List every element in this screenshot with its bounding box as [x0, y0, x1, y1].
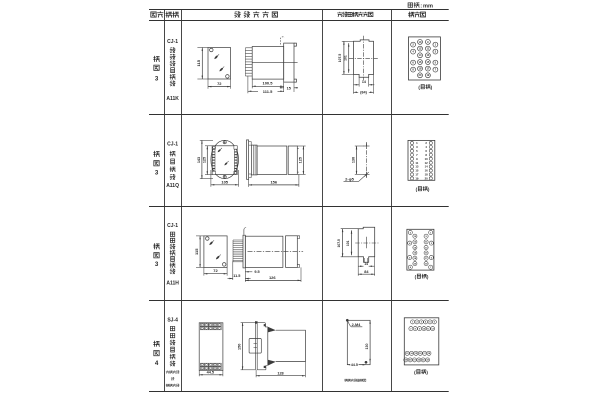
svg-text:CJ-1: CJ-1: [167, 39, 178, 45]
svg-text:14: 14: [364, 262, 368, 266]
svg-text:CJ-1: CJ-1: [167, 223, 178, 229]
svg-text:125: 125: [299, 157, 303, 163]
svg-text:72: 72: [217, 81, 222, 86]
svg-text:130: 130: [365, 344, 369, 350]
svg-text:15: 15: [287, 86, 291, 90]
svg-text:150: 150: [238, 344, 242, 350]
svg-text:mm: mm: [423, 3, 433, 9]
svg-text:107.5: 107.5: [338, 54, 342, 63]
svg-text:SJ-4: SJ-4: [167, 318, 178, 324]
svg-text:CJ-1: CJ-1: [167, 142, 178, 148]
svg-text:20: 20: [425, 176, 429, 180]
svg-text:A11K: A11K: [166, 96, 179, 102]
svg-text:4: 4: [155, 360, 159, 367]
svg-text:11.5: 11.5: [233, 274, 240, 278]
svg-text:156: 156: [270, 179, 277, 184]
svg-text:3: 3: [155, 169, 159, 176]
svg-text:130: 130: [352, 157, 356, 163]
svg-text:125: 125: [202, 157, 206, 163]
svg-text:44.5: 44.5: [351, 363, 358, 367]
svg-text:(84): (84): [360, 91, 367, 95]
svg-text:44.5: 44.5: [207, 370, 214, 374]
svg-text:111.5: 111.5: [263, 89, 273, 94]
svg-text:107.5: 107.5: [337, 239, 341, 248]
svg-text:2-M4: 2-M4: [352, 323, 362, 327]
svg-text:19: 19: [415, 176, 419, 180]
svg-text:101: 101: [343, 55, 347, 61]
svg-text:100.5: 100.5: [262, 81, 273, 86]
svg-text:128: 128: [277, 371, 283, 375]
svg-text:2-φ5: 2-φ5: [345, 176, 354, 181]
svg-text:A11H: A11H: [166, 280, 179, 286]
svg-text:14: 14: [362, 80, 366, 84]
svg-text:126: 126: [269, 275, 276, 280]
svg-text:105: 105: [221, 179, 228, 184]
svg-text:3: 3: [155, 75, 159, 82]
svg-text:101: 101: [346, 240, 350, 246]
svg-text:115: 115: [196, 59, 201, 66]
svg-text:72: 72: [213, 268, 218, 273]
svg-text:A11Q: A11Q: [166, 183, 179, 189]
svg-text:115: 115: [194, 248, 199, 255]
svg-text:143: 143: [197, 157, 201, 163]
svg-text:3: 3: [155, 261, 159, 268]
svg-text:9.5: 9.5: [254, 270, 259, 274]
